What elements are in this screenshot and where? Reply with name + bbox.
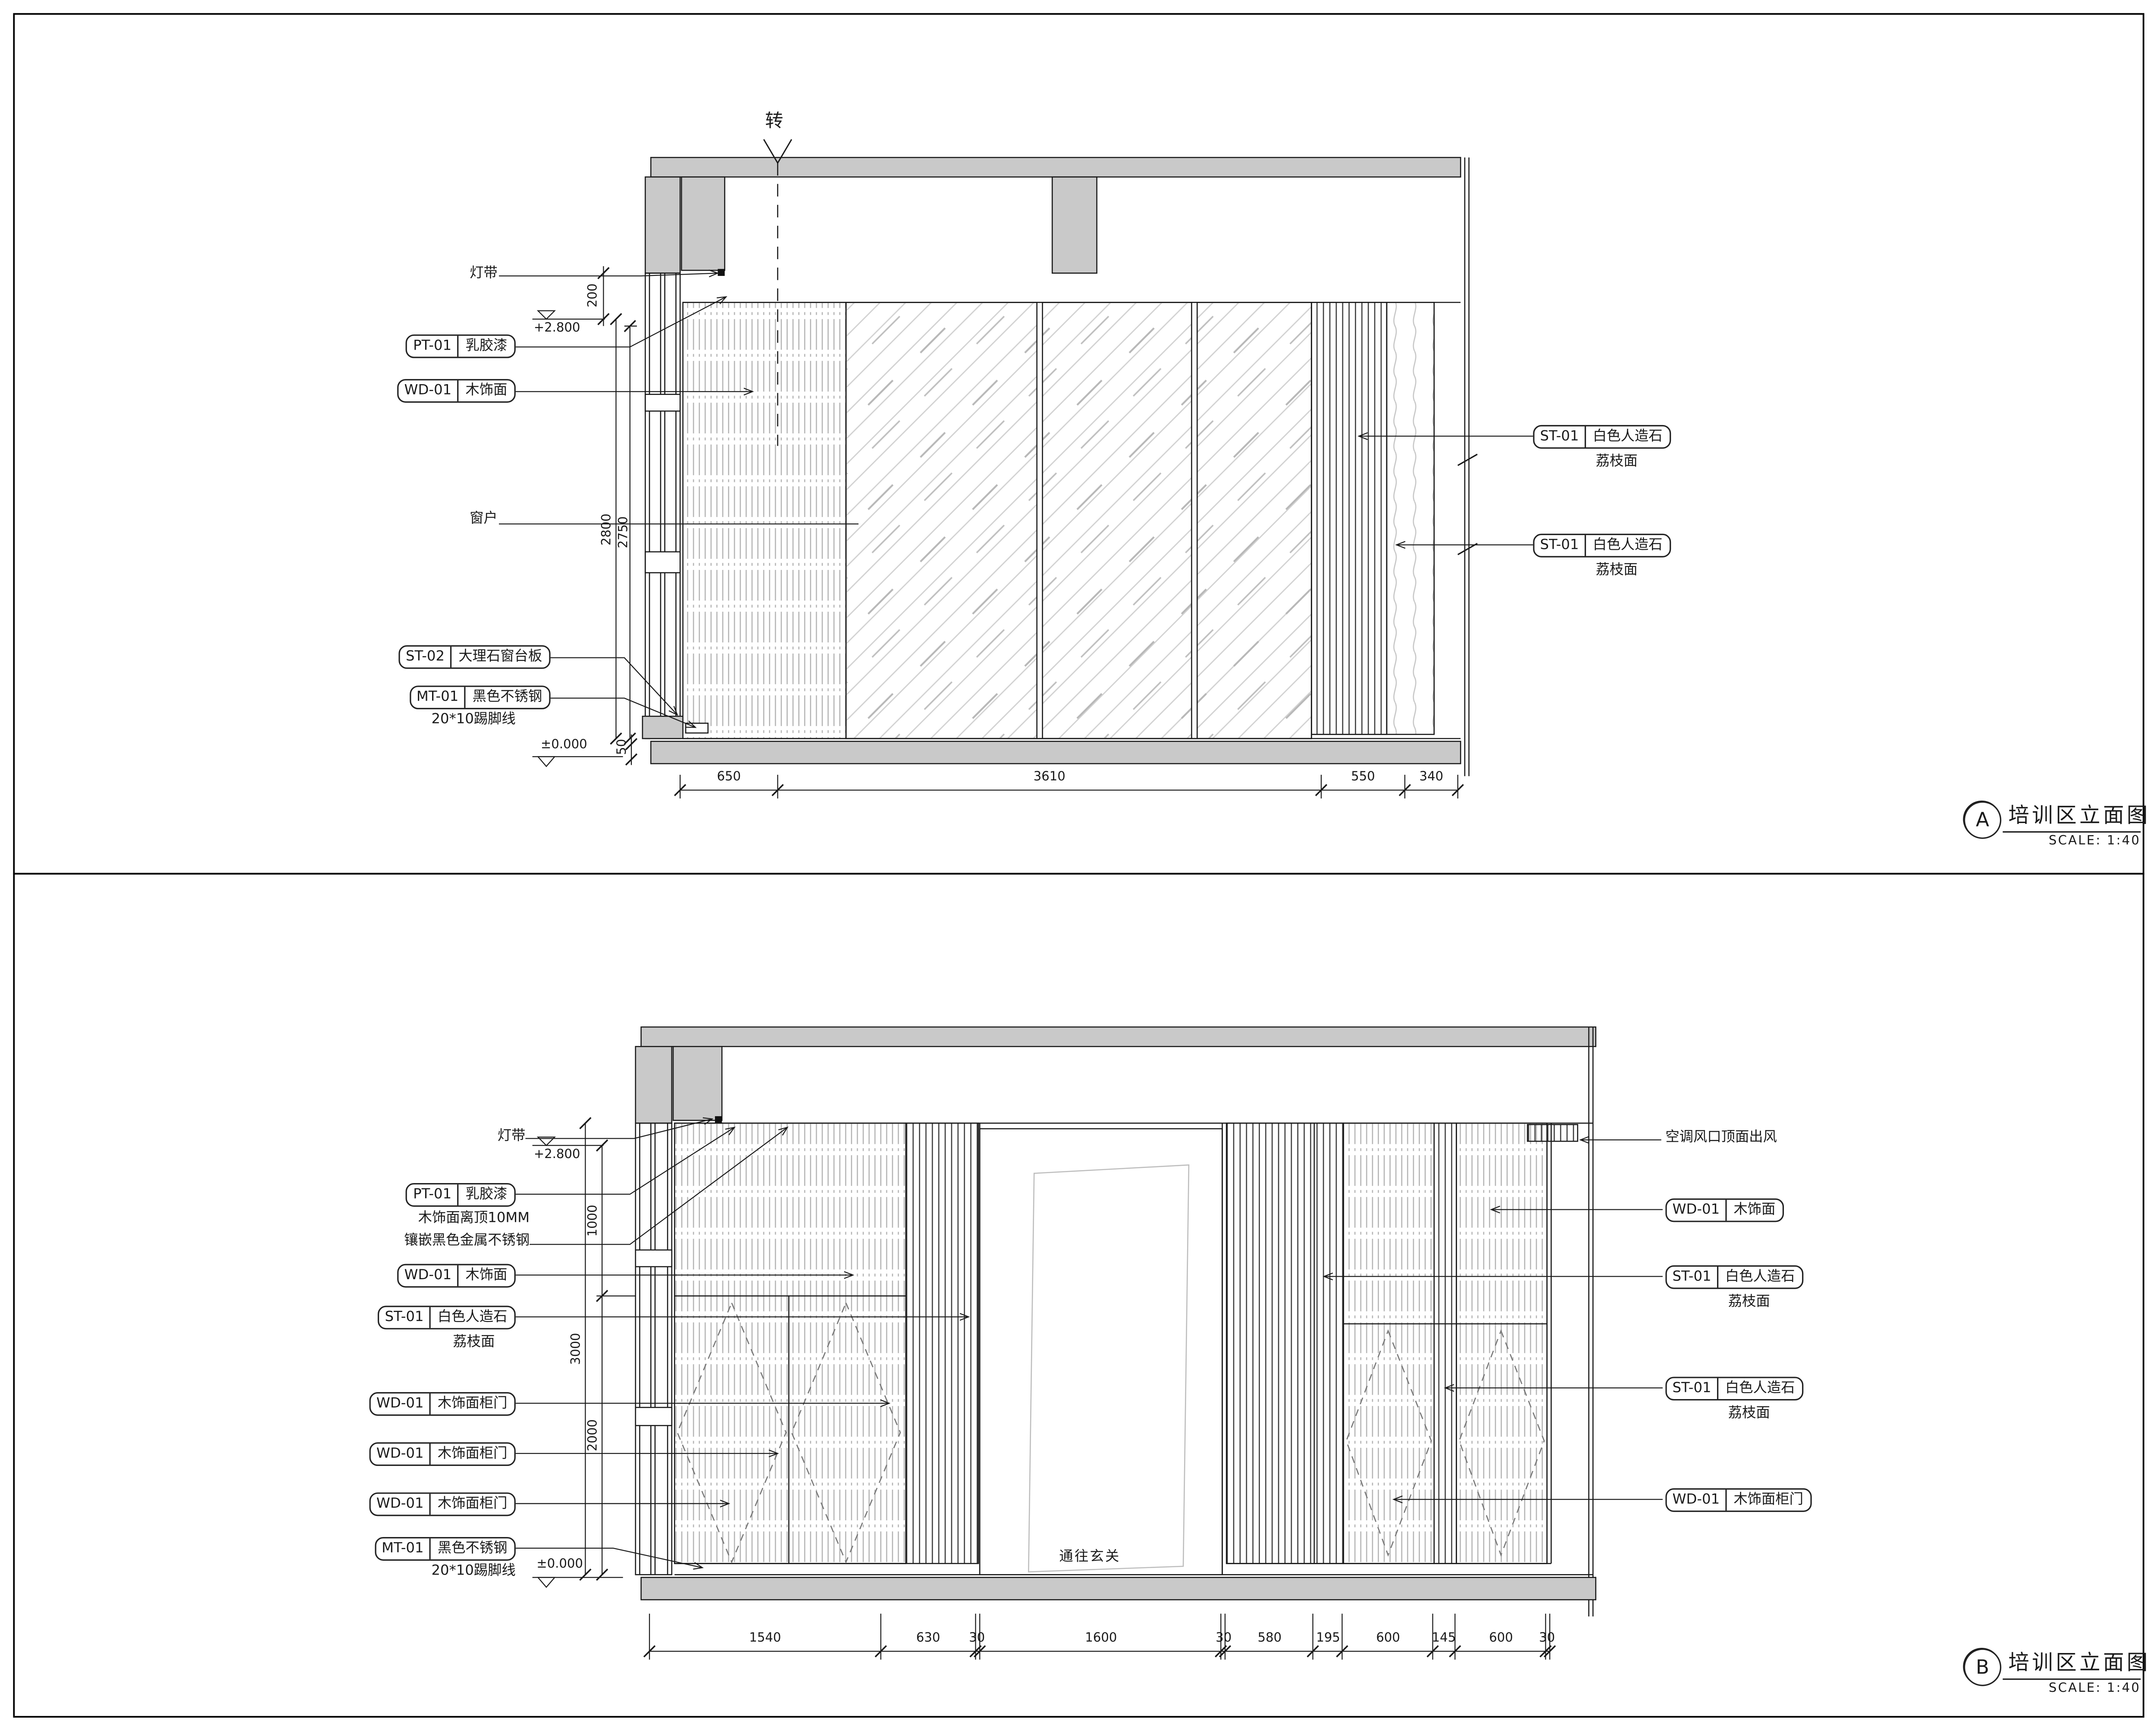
dim-b-1600: 1600	[1059, 1632, 1143, 1646]
material-tag-st01-br1: ST-01 白色人造石	[1665, 1265, 1803, 1289]
floor-slab-b	[641, 1578, 1596, 1600]
dim-a-340: 340	[1389, 770, 1473, 784]
dim-2000: 2000	[587, 1393, 601, 1477]
dim-b-145: 145	[1426, 1632, 1462, 1646]
scale-b: SCALE: 1:40	[2049, 1682, 2140, 1696]
label-light-strip-a: 灯带	[470, 266, 498, 283]
note-skirting-b: 20*10踢脚线	[431, 1563, 515, 1580]
note-finish-a2: 荔枝面	[1596, 563, 1638, 580]
ceiling-slab-a	[651, 157, 1460, 177]
material-tag-mt01-a: MT-01 黑色不锈钢	[410, 686, 551, 709]
wood-slat-cabinet-left-b	[674, 1123, 906, 1563]
label-door-to-foyer: 通往玄关	[1059, 1544, 1120, 1565]
dim-b-580: 580	[1242, 1632, 1297, 1646]
material-tag-st01-a1: ST-01 白色人造石	[1533, 425, 1671, 449]
dim-a-3610: 3610	[1008, 770, 1091, 784]
dim-b-600a: 600	[1360, 1632, 1416, 1646]
fold-marker-a: 转	[765, 106, 783, 132]
material-tag-cab1-b: WD-01 木饰面柜门	[370, 1392, 516, 1416]
view-tag-a: A	[1964, 801, 2001, 839]
elevation-a-drawing	[642, 139, 1477, 776]
title-a: 培训区立面图	[2008, 800, 2150, 829]
stone-slat-band-b	[1226, 1123, 1343, 1563]
light-strip-a	[718, 269, 725, 276]
material-tag-cab-br: WD-01 木饰面柜门	[1665, 1488, 1811, 1512]
material-tag-wd01-br: WD-01 木饰面	[1665, 1199, 1783, 1222]
ac-vent-b	[1527, 1124, 1577, 1141]
dim-b-30b: 30	[1206, 1632, 1242, 1646]
view-tag-b: B	[1964, 1649, 2001, 1686]
floor-slab-a	[651, 741, 1460, 764]
material-tag-wd01-a: WD-01 木饰面	[397, 379, 515, 403]
material-tag-cab3-b: WD-01 木饰面柜门	[370, 1493, 516, 1516]
note-skirting-a: 20*10踢脚线	[431, 712, 515, 729]
material-tag-st01-a2: ST-01 白色人造石	[1533, 534, 1671, 557]
label-light-strip-b: 灯带	[498, 1129, 526, 1146]
note-wood-gap-2: 镶嵌黑色金属不锈钢	[404, 1233, 530, 1250]
level-floor-a: ±0.000	[541, 739, 587, 754]
dim-b-30c: 30	[1529, 1632, 1565, 1646]
scale-a: SCALE: 1:40	[2049, 835, 2140, 848]
note-finish-a1: 荔枝面	[1596, 454, 1638, 471]
level-ceiling-a: +2.800	[534, 322, 580, 338]
dim-50: 50	[616, 705, 630, 789]
dim-b-630: 630	[900, 1632, 956, 1646]
title-b: 培训区立面图	[2008, 1647, 2150, 1676]
dim-b-30a: 30	[959, 1632, 995, 1646]
dim-1000: 1000	[587, 1179, 601, 1262]
elevation-b-drawing	[636, 1027, 1596, 1616]
level-floor-b: ±0.000	[536, 1558, 583, 1573]
wood-slat-wall-a	[683, 302, 846, 739]
elevation-linework	[0, 0, 2156, 1725]
note-wood-gap-1: 木饰面离顶10MM	[418, 1211, 530, 1228]
level-ceiling-b: +2.800	[534, 1148, 580, 1164]
material-tag-pt01-b: PT-01 乳胶漆	[406, 1183, 516, 1207]
dim-3000: 3000	[570, 1307, 584, 1391]
note-finish-br1: 荔枝面	[1728, 1295, 1770, 1312]
material-tag-wd01-b: WD-01 木饰面	[397, 1264, 515, 1288]
cad-sheet: 转 灯带 200 +2.800 PT-01 乳胶漆 WD-01 木饰面 窗户 2…	[0, 0, 2156, 1725]
dim-b-600b: 600	[1473, 1632, 1529, 1646]
dim-b-195: 195	[1310, 1632, 1346, 1646]
material-tag-st01-br2: ST-01 白色人造石	[1665, 1377, 1803, 1400]
material-tag-cab2-b: WD-01 木饰面柜门	[370, 1442, 516, 1466]
cabinet-right2-b	[1457, 1123, 1547, 1563]
note-finish-bl: 荔枝面	[453, 1335, 495, 1352]
dim-2750: 2750	[617, 491, 631, 574]
window-frame-a	[645, 273, 680, 739]
dim-a-650: 650	[687, 770, 771, 784]
note-finish-br2: 荔枝面	[1728, 1406, 1770, 1423]
window-frame-b	[636, 1123, 672, 1575]
material-tag-st01-bl: ST-01 白色人造石	[378, 1305, 516, 1329]
door-opening-b	[980, 1123, 1222, 1575]
material-tag-st02-a: ST-02 大理石窗台板	[399, 645, 551, 669]
dim-b-1540: 1540	[723, 1632, 807, 1646]
light-strip-b	[715, 1116, 722, 1123]
label-ac-vent-b: 空调风口顶面出风	[1665, 1130, 1777, 1147]
cabinet-right1-b	[1344, 1123, 1434, 1563]
material-tag-pt01-a: PT-01 乳胶漆	[406, 335, 516, 358]
dim-2800: 2800	[601, 488, 614, 571]
dim-200: 200	[587, 254, 601, 337]
label-window-a: 窗户	[470, 511, 498, 528]
ceiling-slab-b	[641, 1027, 1596, 1046]
material-tag-mt01-b: MT-01 黑色不锈钢	[375, 1537, 516, 1561]
stone-slat-band-a	[1311, 302, 1387, 734]
stone-panel-a	[1387, 302, 1434, 734]
